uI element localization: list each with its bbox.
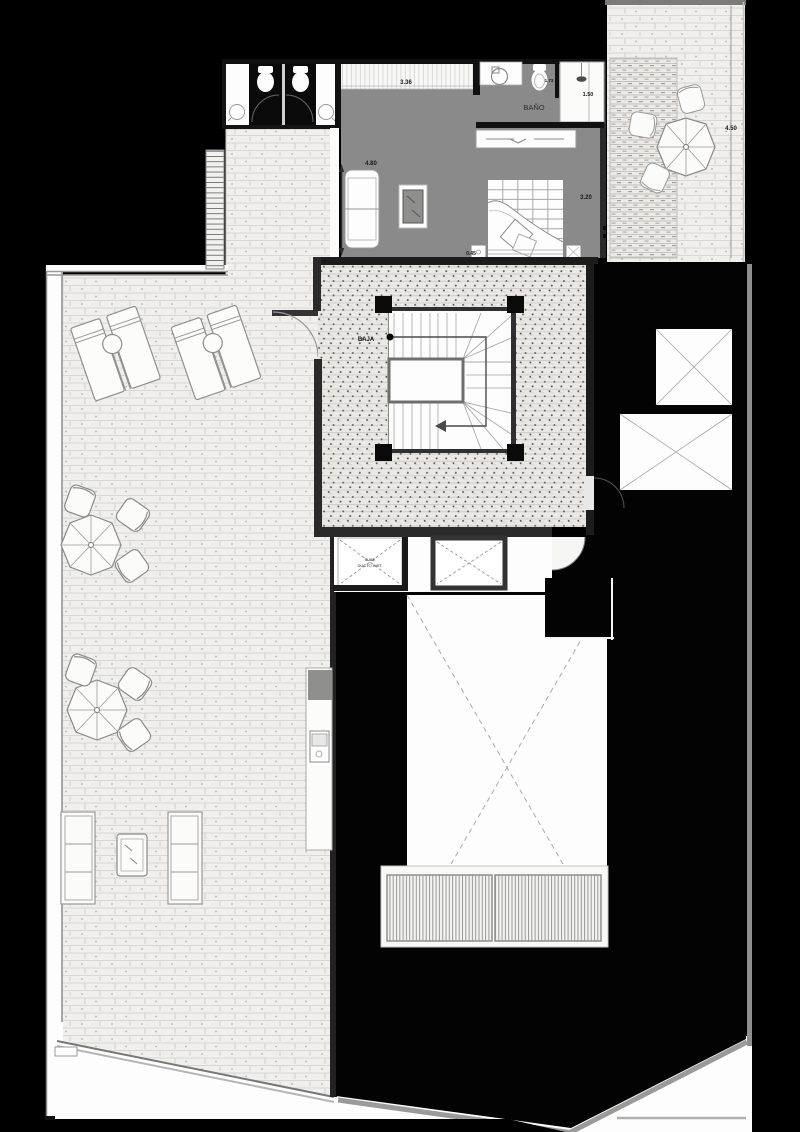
svg-text:BAJA: BAJA [358,337,375,343]
svg-text:4.50: 4.50 [725,126,737,132]
svg-text:4.80: 4.80 [365,161,377,167]
svg-text:SUBE: SUBE [365,557,376,562]
svg-text:3.36: 3.36 [400,80,412,86]
svg-text:0.45: 0.45 [466,251,476,257]
svg-text:1.73: 1.73 [545,78,554,83]
svg-text:1.50: 1.50 [583,92,594,98]
svg-text:DUCTO INST.: DUCTO INST. [357,563,382,568]
svg-text:3.20: 3.20 [580,195,592,201]
svg-text:BAÑO: BAÑO [523,103,544,112]
